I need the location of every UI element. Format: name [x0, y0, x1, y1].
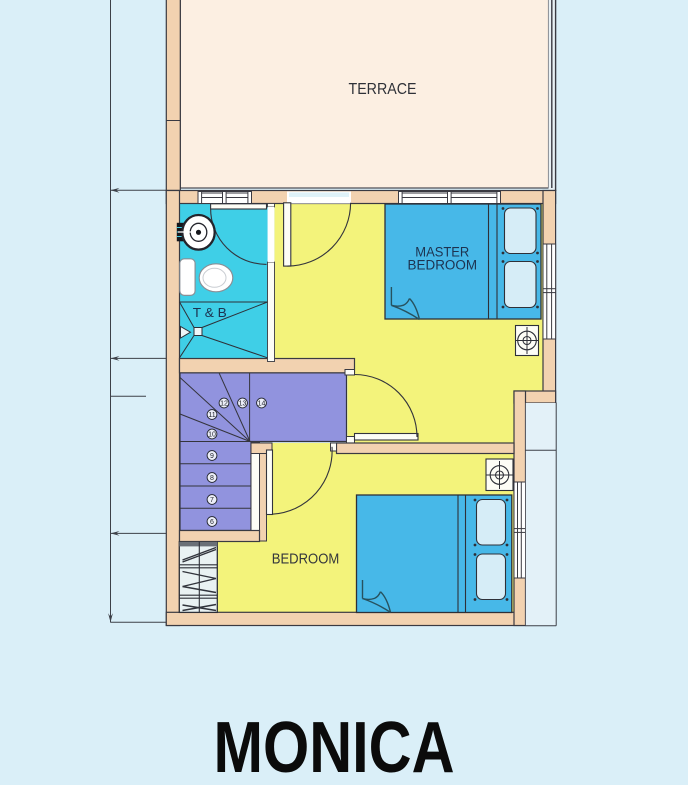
svg-text:TERRACE: TERRACE: [349, 81, 417, 98]
svg-text:10: 10: [208, 432, 216, 439]
svg-text:T & B: T & B: [193, 305, 227, 320]
svg-text:BEDROOM: BEDROOM: [272, 552, 340, 568]
svg-text:12: 12: [220, 401, 228, 408]
svg-text:13: 13: [239, 401, 247, 408]
svg-text:MONICA: MONICA: [214, 707, 455, 785]
svg-text:14: 14: [258, 401, 266, 408]
svg-text:7: 7: [210, 497, 214, 504]
svg-text:11: 11: [208, 412, 215, 419]
svg-text:6: 6: [210, 519, 214, 526]
svg-text:8: 8: [210, 475, 214, 482]
svg-text:BEDROOM: BEDROOM: [408, 258, 478, 273]
svg-text:9: 9: [210, 453, 214, 460]
